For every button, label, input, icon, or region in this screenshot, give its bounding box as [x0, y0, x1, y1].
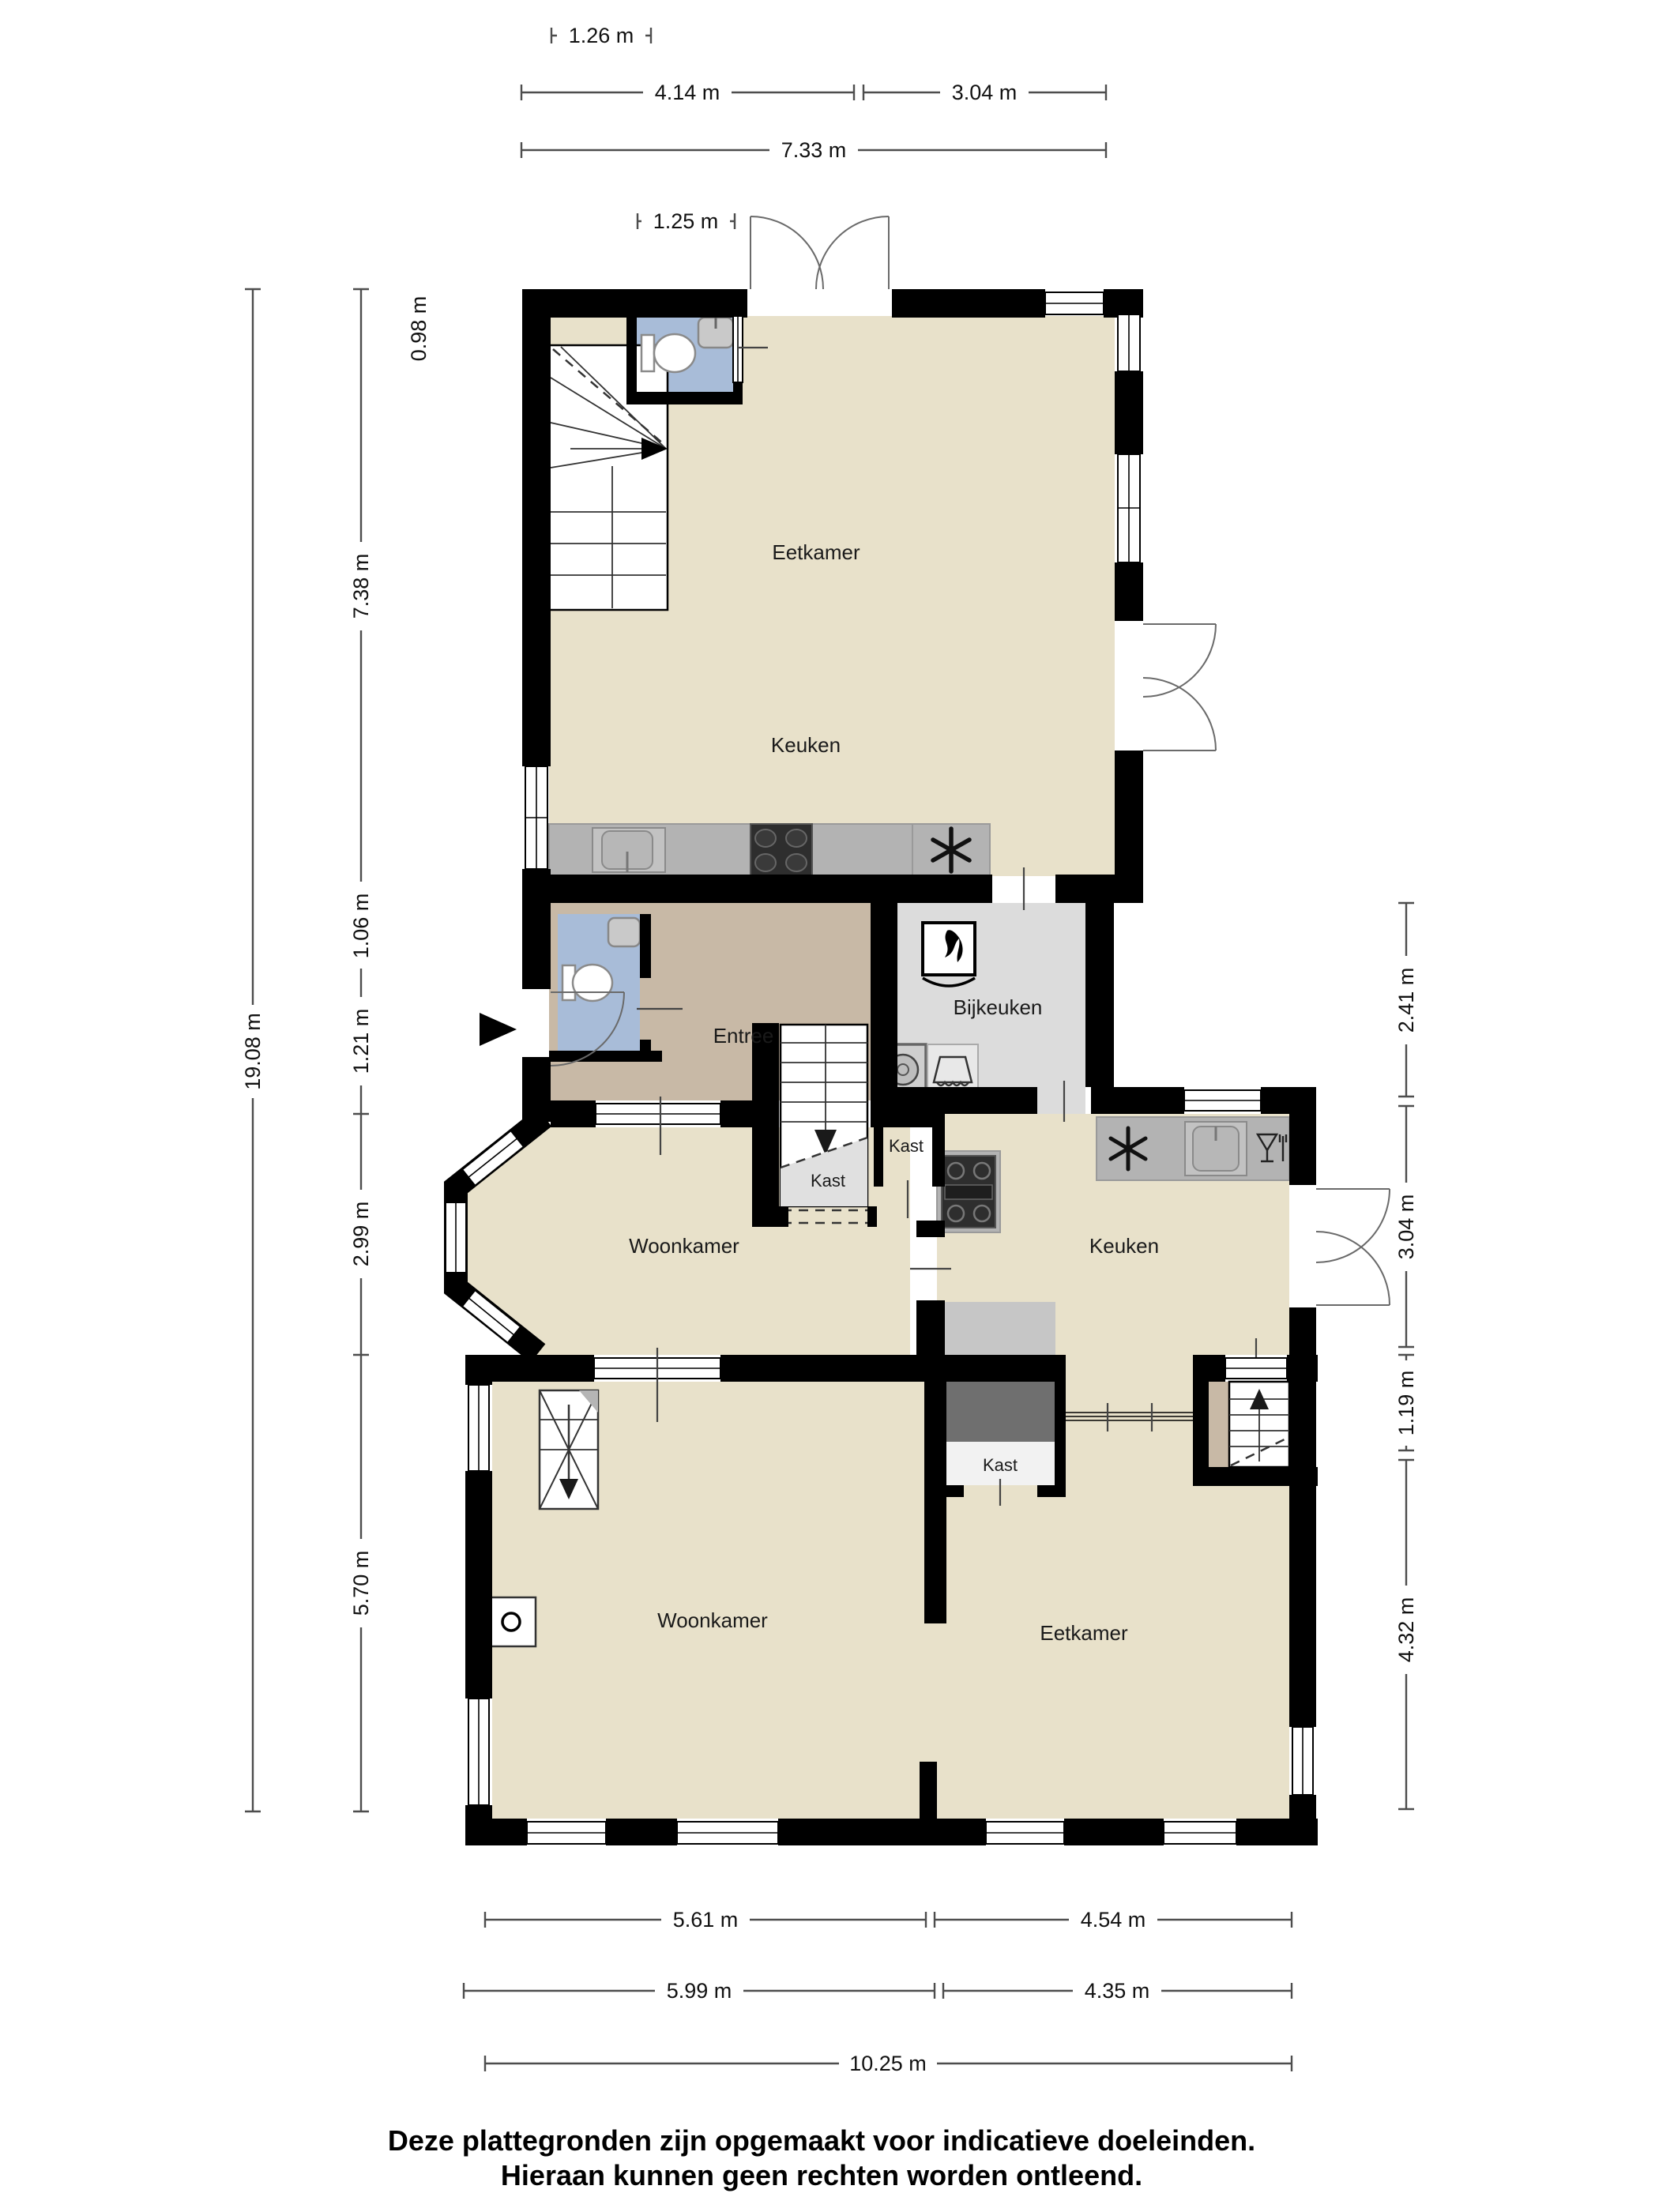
dim-7-38m: 7.38 m	[348, 289, 374, 883]
svg-text:4.35 m: 4.35 m	[1085, 1979, 1150, 2003]
svg-text:3.04 m: 3.04 m	[952, 81, 1018, 104]
svg-text:1.25 m: 1.25 m	[653, 209, 719, 233]
dim-5-99m: 5.99 m	[464, 1977, 935, 2004]
svg-text:5.99 m: 5.99 m	[667, 1979, 732, 2003]
dim-5-70m: 5.70 m	[348, 1355, 374, 1811]
floor-woonkamer-eetkamer	[492, 1382, 1289, 1819]
dim-10-25m: 10.25 m	[485, 2050, 1292, 2077]
label-eetkamer: Eetkamer	[1040, 1621, 1128, 1645]
dim-1-06m: 1.06 m	[348, 882, 374, 970]
kitchen-counter-top	[549, 824, 990, 876]
floorplan-page: Eetkamer Keuken Entree Bijkeuken Kast Ka…	[0, 0, 1659, 2212]
svg-text:7.33 m: 7.33 m	[781, 138, 847, 162]
svg-text:10.25 m: 10.25 m	[849, 2052, 927, 2075]
label-keuken-top: Keuken	[771, 733, 841, 757]
svg-text:3.04 m: 3.04 m	[1394, 1194, 1418, 1260]
svg-text:1.19 m: 1.19 m	[1394, 1371, 1418, 1436]
label-kast-hal: Kast	[889, 1136, 924, 1156]
french-door-upper-right	[1143, 624, 1216, 750]
dim-1-19m: 1.19 m	[1393, 1355, 1420, 1450]
toilet-cistern-icon	[641, 335, 654, 371]
dim-2-99m: 2.99 m	[348, 1114, 374, 1355]
dim-4-14m: 4.14 m	[521, 79, 854, 106]
label-woonkamer: Woonkamer	[657, 1608, 768, 1632]
label-bijkeuken: Bijkeuken	[954, 995, 1043, 1019]
dim-0-98m: 0.98 m	[405, 284, 432, 373]
fireplace	[487, 1597, 536, 1646]
dim-19-08m: 19.08 m	[239, 289, 266, 1811]
upper-stairs	[549, 345, 668, 610]
svg-text:2.99 m: 2.99 m	[349, 1202, 373, 1267]
dim-5-61m: 5.61 m	[485, 1906, 926, 1933]
svg-text:1.21 m: 1.21 m	[349, 1009, 373, 1074]
dim-7-33m: 7.33 m	[521, 137, 1106, 164]
low-cabinet	[937, 1302, 1055, 1355]
label-kast-eetkamer: Kast	[983, 1455, 1018, 1475]
label-woonkamer-mid: Woonkamer	[629, 1234, 739, 1258]
svg-text:1.06 m: 1.06 m	[349, 893, 373, 959]
svg-text:0.98 m: 0.98 m	[407, 296, 431, 362]
label-kast-trap: Kast	[811, 1171, 845, 1191]
disclaimer-line-2: Hieraan kunnen geen rechten worden ontle…	[501, 2159, 1142, 2191]
svg-text:2.41 m: 2.41 m	[1394, 968, 1418, 1033]
svg-text:5.61 m: 5.61 m	[673, 1908, 739, 1932]
double-door-top	[750, 216, 889, 289]
dim-4-35m: 4.35 m	[943, 1977, 1292, 2004]
dim-4-54m: 4.54 m	[935, 1906, 1292, 1933]
dim-1-26m: 1.26 m	[551, 22, 651, 49]
french-door-keuken	[1316, 1189, 1390, 1305]
label-keuken-mid: Keuken	[1089, 1234, 1159, 1258]
dim-1-25m: 1.25 m	[638, 208, 735, 235]
dim-4-32m: 4.32 m	[1393, 1460, 1420, 1809]
toilet-icon	[654, 334, 695, 372]
svg-text:19.08 m: 19.08 m	[241, 1013, 265, 1090]
washbasin-icon	[608, 918, 640, 946]
entrance-arrow-icon	[480, 1013, 517, 1046]
main-stairs	[781, 1025, 867, 1223]
dim-1-21m: 1.21 m	[348, 969, 374, 1114]
svg-text:4.14 m: 4.14 m	[655, 81, 720, 104]
svg-text:1.26 m: 1.26 m	[569, 24, 634, 47]
svg-text:4.54 m: 4.54 m	[1081, 1908, 1146, 1932]
toilet-icon	[573, 965, 612, 1001]
svg-text:7.38 m: 7.38 m	[349, 554, 373, 619]
label-entree: Entree	[713, 1024, 774, 1048]
dim-3-04m-right: 3.04 m	[1393, 1106, 1420, 1347]
disclaimer: Deze plattegronden zijn opgemaakt voor i…	[388, 2124, 1255, 2191]
dim-2-41m: 2.41 m	[1393, 903, 1420, 1097]
label-eetkamer-top: Eetkamer	[772, 540, 860, 564]
svg-text:4.32 m: 4.32 m	[1394, 1597, 1418, 1663]
disclaimer-line-1: Deze plattegronden zijn opgemaakt voor i…	[388, 2124, 1255, 2157]
floorplan-drawing: Eetkamer Keuken Entree Bijkeuken Kast Ka…	[0, 0, 1659, 2212]
dim-3-04m: 3.04 m	[863, 79, 1106, 106]
svg-text:5.70 m: 5.70 m	[349, 1551, 373, 1616]
skylight-void	[540, 1390, 598, 1509]
